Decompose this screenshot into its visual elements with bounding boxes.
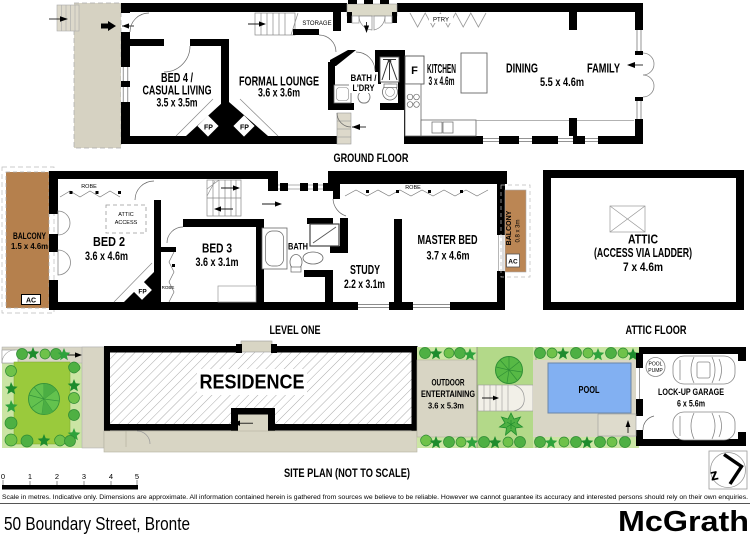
svg-text:MASTER BED: MASTER BED (418, 232, 478, 247)
svg-text:5: 5 (135, 472, 139, 481)
svg-text:ATTIC FLOOR: ATTIC FLOOR (626, 325, 688, 337)
svg-text:F: F (411, 65, 418, 77)
svg-text:STUDY: STUDY (350, 262, 380, 277)
svg-text:Scale in metres. Indicative on: Scale in metres. Indicative only. Dimens… (2, 494, 748, 501)
svg-text:BATH: BATH (288, 242, 308, 253)
svg-text:BED 3: BED 3 (202, 241, 232, 256)
svg-text:5.5 x 4.6m: 5.5 x 4.6m (540, 77, 584, 89)
svg-text:RESIDENCE: RESIDENCE (200, 371, 305, 394)
svg-text:7 x 4.6m: 7 x 4.6m (623, 262, 663, 274)
svg-text:SITE PLAN (NOT TO SCALE): SITE PLAN (NOT TO SCALE) (284, 468, 410, 480)
svg-text:2.2 x 3.1m: 2.2 x 3.1m (344, 279, 385, 291)
svg-text:McGrath: McGrath (618, 506, 749, 535)
svg-text:3.7 x 4.6m: 3.7 x 4.6m (427, 251, 470, 263)
svg-text:FAMILY: FAMILY (587, 61, 620, 76)
svg-text:BALCONY: BALCONY (506, 210, 513, 245)
svg-text:GROUND FLOOR: GROUND FLOOR (334, 153, 410, 165)
svg-text:ROBE: ROBE (162, 285, 175, 290)
svg-text:BALCONY: BALCONY (13, 231, 46, 241)
svg-text:3 x 4.6m: 3 x 4.6m (429, 76, 455, 88)
svg-text:4: 4 (109, 472, 113, 481)
svg-text:AC: AC (26, 298, 36, 305)
svg-text:BED 2: BED 2 (93, 234, 125, 249)
svg-text:3: 3 (82, 472, 86, 481)
svg-text:0.8 x 3m: 0.8 x 3m (516, 219, 522, 242)
svg-text:ATTIC: ATTIC (118, 212, 134, 218)
svg-text:3.6 x 5.3m: 3.6 x 5.3m (428, 401, 464, 411)
svg-text:PUMP: PUMP (648, 368, 663, 374)
svg-text:2: 2 (55, 472, 59, 481)
svg-text:L’DRY: L’DRY (353, 83, 376, 94)
svg-text:50 Boundary Street, Bronte: 50 Boundary Street, Bronte (4, 513, 190, 534)
svg-text:AC: AC (508, 259, 518, 266)
svg-text:LEVEL ONE: LEVEL ONE (270, 325, 321, 337)
svg-text:ACCESS: ACCESS (115, 220, 138, 226)
svg-text:STORAGE: STORAGE (302, 21, 331, 27)
svg-text:1.5 x 4.6m: 1.5 x 4.6m (11, 241, 48, 251)
svg-text:LOCK-UP GARAGE: LOCK-UP GARAGE (658, 387, 724, 398)
svg-text:PTRY: PTRY (433, 18, 449, 24)
svg-text:0: 0 (1, 472, 5, 481)
svg-text:OUTDOOR: OUTDOOR (432, 378, 465, 388)
svg-text:3.6 x 3.1m: 3.6 x 3.1m (196, 257, 239, 269)
svg-text:1: 1 (28, 472, 32, 481)
svg-text:3.6 x 3.6m: 3.6 x 3.6m (258, 88, 300, 100)
svg-text:3.6 x 4.6m: 3.6 x 4.6m (85, 251, 128, 263)
svg-text:POOL: POOL (579, 385, 600, 396)
svg-text:FORMAL LOUNGE: FORMAL LOUNGE (239, 74, 319, 89)
svg-text:ROBE: ROBE (81, 184, 97, 190)
svg-text:POOL: POOL (649, 362, 663, 368)
svg-text:KITCHEN: KITCHEN (427, 61, 456, 76)
svg-text:FP: FP (240, 125, 249, 132)
svg-text:ENTERTAINING: ENTERTAINING (421, 389, 475, 399)
svg-text:FP: FP (138, 289, 147, 296)
svg-text:DINING: DINING (506, 61, 538, 76)
svg-text:CASUAL LIVING: CASUAL LIVING (143, 83, 212, 98)
svg-text:3.5 x 3.5m: 3.5 x 3.5m (157, 98, 198, 110)
svg-text:FP: FP (204, 125, 213, 132)
svg-text:6 x 5.6m: 6 x 5.6m (677, 399, 705, 409)
svg-text:ROBE: ROBE (405, 185, 421, 191)
svg-text:(ACCESS VIA LADDER): (ACCESS VIA LADDER) (594, 245, 692, 260)
